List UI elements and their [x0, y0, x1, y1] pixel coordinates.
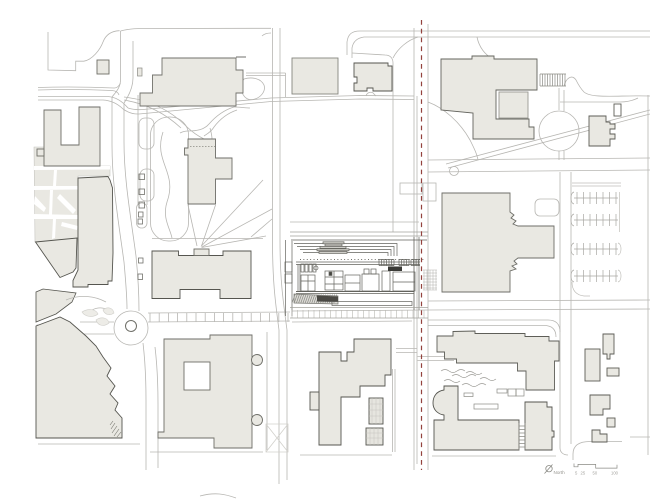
svg-text:North: North — [554, 470, 566, 475]
svg-text:25: 25 — [581, 471, 586, 476]
svg-text:100: 100 — [611, 471, 619, 476]
svg-text:50: 50 — [593, 471, 598, 476]
